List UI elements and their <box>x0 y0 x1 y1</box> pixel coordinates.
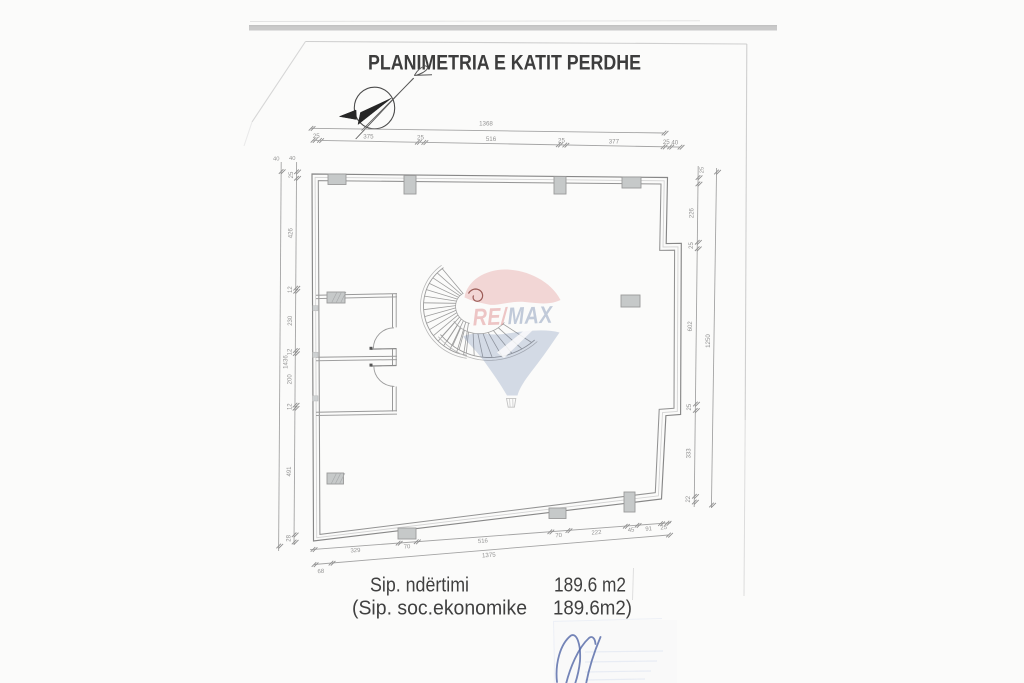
svg-text:222: 222 <box>591 530 602 537</box>
svg-text:189.6m2): 189.6m2) <box>553 598 632 620</box>
svg-text:22: 22 <box>686 495 692 502</box>
svg-text:70: 70 <box>404 544 412 551</box>
svg-text:516: 516 <box>478 538 489 545</box>
svg-text:329: 329 <box>350 548 361 555</box>
svg-text:426: 426 <box>289 228 295 239</box>
svg-text:333: 333 <box>687 448 693 459</box>
svg-text:491: 491 <box>287 466 293 477</box>
svg-text:12: 12 <box>288 348 294 355</box>
svg-text:40: 40 <box>289 156 295 162</box>
svg-text:1436: 1436 <box>283 355 290 369</box>
svg-text:28: 28 <box>287 534 293 541</box>
svg-text:602: 602 <box>688 321 694 332</box>
svg-text:1375: 1375 <box>482 551 497 559</box>
svg-text:25: 25 <box>313 133 320 140</box>
svg-text:189.6 m2: 189.6 m2 <box>554 574 626 596</box>
svg-text:226: 226 <box>689 207 695 218</box>
svg-text:1368: 1368 <box>479 121 493 128</box>
svg-text:25: 25 <box>663 139 670 146</box>
svg-text:12: 12 <box>287 403 293 410</box>
svg-text:68: 68 <box>317 569 325 576</box>
svg-text:25: 25 <box>558 137 565 144</box>
svg-text:377: 377 <box>609 138 620 145</box>
svg-text:PLANIMETRIA E KATIT PERDHE: PLANIMETRIA E KATIT PERDHE <box>368 51 641 75</box>
svg-text:12: 12 <box>288 286 294 293</box>
svg-text:(Sip. soc.ekonomike: (Sip. soc.ekonomike <box>352 598 527 620</box>
svg-text:45: 45 <box>628 528 636 535</box>
svg-text:375: 375 <box>363 134 374 141</box>
svg-text:Sip. ndërtimi: Sip. ndërtimi <box>370 574 469 596</box>
svg-text:25: 25 <box>687 403 693 410</box>
svg-text:91: 91 <box>645 526 653 533</box>
svg-text:1250: 1250 <box>705 334 712 348</box>
svg-text:516: 516 <box>486 136 497 143</box>
svg-text:25: 25 <box>417 135 424 142</box>
svg-text:40: 40 <box>273 157 279 163</box>
svg-text:RE/MAX: RE/MAX <box>472 302 554 332</box>
svg-text:70: 70 <box>555 533 563 540</box>
svg-text:200: 200 <box>288 374 294 385</box>
svg-text:230: 230 <box>288 315 294 326</box>
svg-text:25: 25 <box>289 171 295 178</box>
svg-text:40: 40 <box>671 139 678 146</box>
svg-text:25: 25 <box>689 242 695 249</box>
svg-text:25: 25 <box>660 525 668 532</box>
svg-text:25: 25 <box>700 167 706 173</box>
